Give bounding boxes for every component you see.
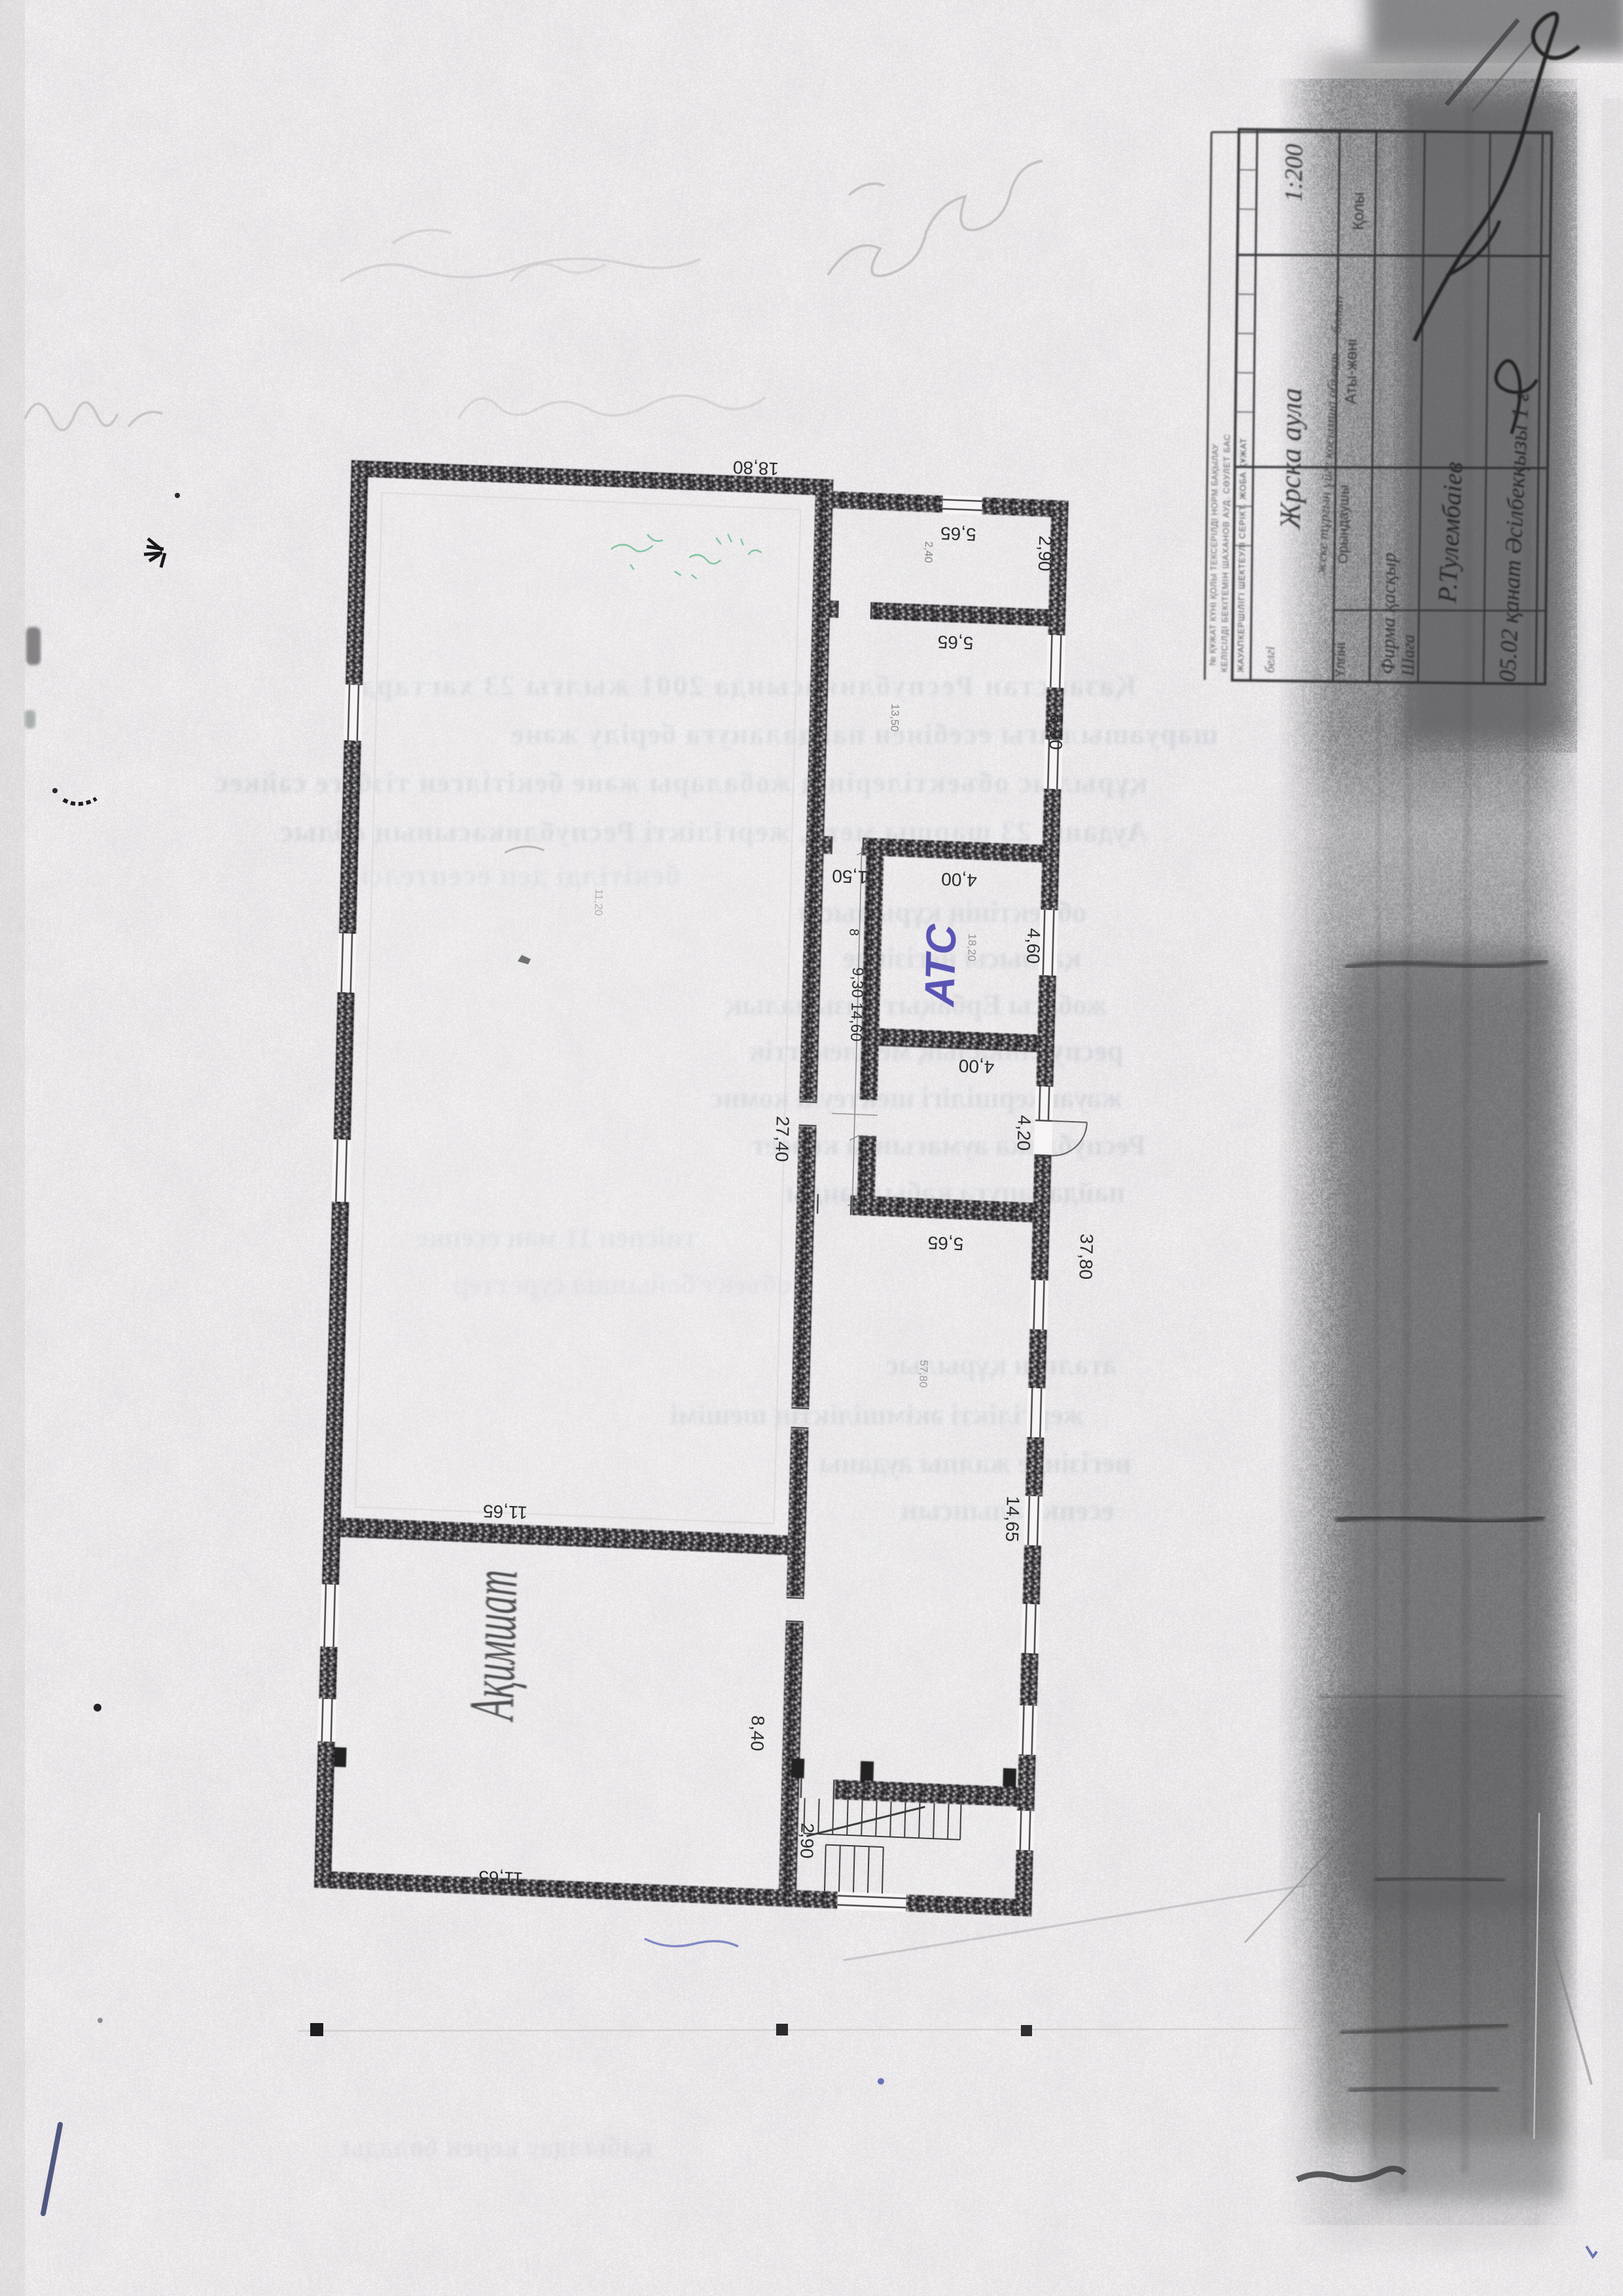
svg-text:Аты-жөні: Аты-жөні <box>1342 339 1361 404</box>
svg-text:2,90: 2,90 <box>1035 535 1056 572</box>
svg-text:9,30 14,60: 9,30 14,60 <box>847 967 866 1041</box>
svg-text:11,20: 11,20 <box>592 889 605 916</box>
svg-text:5,65: 5,65 <box>937 632 973 653</box>
svg-text:5,90: 5,90 <box>1046 714 1067 751</box>
svg-text:18,80: 18,80 <box>732 457 779 479</box>
svg-text:1:200: 1:200 <box>1280 144 1308 202</box>
svg-text:Орындаушы: Орындаушы <box>1336 484 1351 564</box>
svg-text:14,65: 14,65 <box>1002 1496 1024 1542</box>
svg-text:4,00: 4,00 <box>941 869 977 891</box>
svg-text:АТС: АТС <box>916 923 965 1009</box>
svg-text:11,65: 11,65 <box>478 1867 524 1889</box>
svg-text:Фирма қасқыр: Фирма қасқыр <box>1377 552 1400 674</box>
svg-text:27,40: 27,40 <box>772 1116 793 1162</box>
svg-text:Жрска аула: Жрска аула <box>1274 387 1308 530</box>
svg-text:4,20: 4,20 <box>1014 1115 1035 1151</box>
svg-text:57,80: 57,80 <box>917 1359 930 1388</box>
svg-text:белгі: белгі <box>1263 646 1277 673</box>
svg-text:18,20: 18,20 <box>965 933 978 961</box>
svg-text:5,65: 5,65 <box>940 523 976 545</box>
svg-text:5,65: 5,65 <box>927 1232 963 1254</box>
svg-text:13,50: 13,50 <box>888 704 901 732</box>
svg-text:Шага: Шага <box>1399 634 1418 677</box>
svg-text:Қолы: Қолы <box>1349 192 1368 230</box>
svg-text:1,50: 1,50 <box>832 866 868 888</box>
svg-text:4,60: 4,60 <box>1023 928 1044 965</box>
svg-text:Ақимшат: Ақимшат <box>456 1568 531 1723</box>
svg-text:2,90: 2,90 <box>796 1823 817 1859</box>
svg-text:11,65: 11,65 <box>483 1501 528 1523</box>
svg-text:8: 8 <box>846 928 861 936</box>
svg-text:8,40: 8,40 <box>747 1715 768 1751</box>
svg-text:қабылдау керек болады: қабылдау керек болады <box>342 2131 652 2163</box>
svg-text:37,80: 37,80 <box>1076 1233 1097 1280</box>
svg-text:Үлгіні: Үлгіні <box>1333 643 1349 677</box>
svg-text:2,40: 2,40 <box>922 541 935 564</box>
svg-text:4,00: 4,00 <box>958 1056 994 1077</box>
